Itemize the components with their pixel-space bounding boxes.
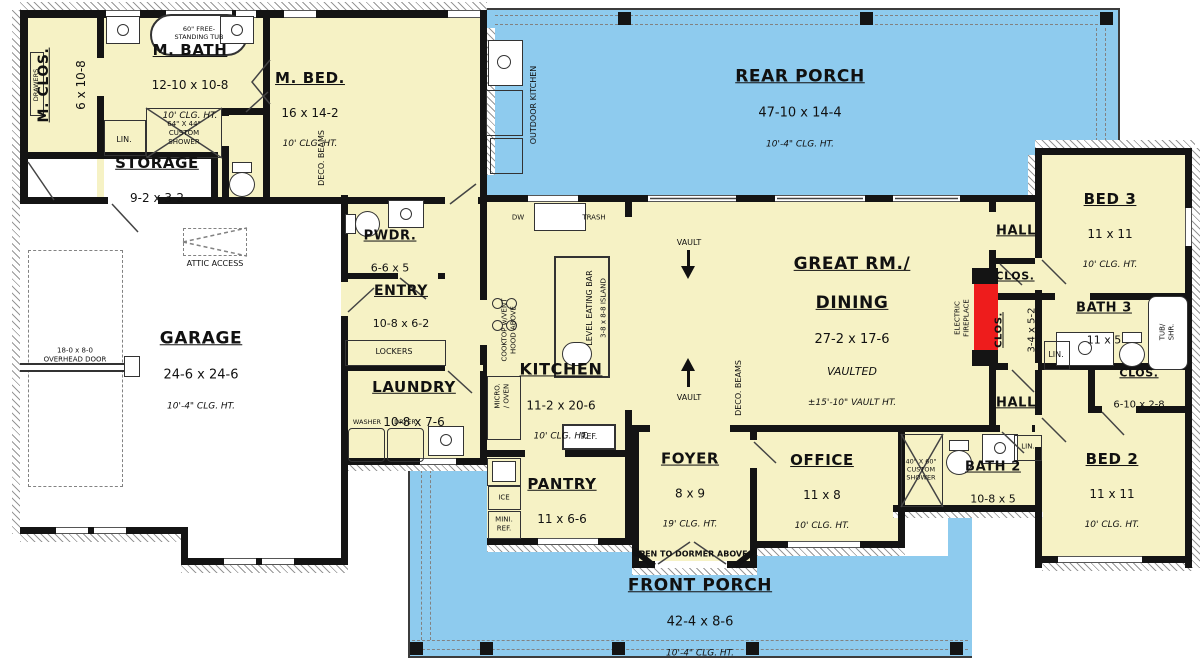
foyer-note: OPEN TO DORMER ABOVE	[632, 550, 747, 560]
drawers-label: DRAWERS	[33, 69, 41, 102]
m-bed-name: M. BED.	[275, 70, 345, 88]
overhead-door-track	[20, 363, 136, 372]
outdoor-kitchen-label: OUTDOOR KITCHEN	[529, 66, 539, 145]
wall	[625, 410, 632, 545]
door-opening	[1035, 258, 1042, 290]
door-opening	[1008, 363, 1038, 370]
office-clg: 10' CLG. HT.	[790, 521, 854, 532]
porch-post	[1100, 12, 1113, 25]
sink-basin	[117, 24, 129, 36]
bed3-clg: 10' CLG. HT.	[1083, 260, 1138, 271]
attic-access-label: ATTIC ACCESS	[187, 259, 244, 269]
pwdr-name: PWDR.	[364, 228, 417, 243]
kitchen-name: KITCHEN	[520, 360, 603, 379]
window	[262, 558, 294, 565]
m-bath-name: M. BATH	[152, 42, 229, 60]
kitchen-dims: 11-2 x 20-6	[520, 398, 603, 412]
entry-dims: 10-8 x 6-2	[373, 318, 429, 331]
bed2-dims: 11 x 11	[1085, 487, 1140, 501]
rear-porch-edge-right	[1118, 8, 1120, 150]
hatch-garage-bottom1	[20, 534, 188, 542]
window	[528, 195, 578, 202]
outdoor-grill	[486, 90, 523, 136]
wall	[263, 10, 270, 204]
vault-arrow-up-head	[681, 358, 695, 371]
wall	[222, 108, 270, 115]
tub-shr-label: TUB/ SHR.	[1158, 316, 1176, 349]
room-label-clos342: CLOS. 3-4 x 5-2	[974, 308, 1059, 353]
wall	[211, 152, 218, 204]
hatch-bed2-bottom	[1042, 563, 1192, 571]
lin-label-bath3: LIN.	[1048, 350, 1063, 360]
storage-dims: 9-2 x 3-2	[115, 191, 199, 205]
foyer-name: FOYER	[632, 450, 747, 468]
great-rm-name2: DINING	[794, 293, 911, 313]
room-label-bed2: BED 2 11 x 11 10' CLG. HT.	[1085, 432, 1140, 550]
front-porch-area-office	[757, 548, 905, 658]
hall-lower-label: HALL	[996, 395, 1036, 410]
dashed-line	[421, 470, 422, 640]
bath2-name: BATH 2	[965, 459, 1021, 474]
ref-label: REF.	[581, 432, 597, 442]
window	[224, 558, 256, 565]
vault-arrow-down-head	[681, 266, 695, 279]
room-label-kitchen: KITCHEN 11-2 x 20-6 10' CLG. HT.	[520, 341, 603, 460]
dw-label: DW	[512, 214, 524, 223]
window	[1058, 556, 1142, 563]
porch-post	[410, 642, 423, 655]
dashed-line	[495, 15, 1113, 16]
porch-post	[950, 642, 963, 655]
front-porch-edge-left	[408, 468, 410, 658]
hatch-bedwing-top	[1035, 140, 1195, 148]
fireplace-surround-top	[972, 268, 998, 284]
floor-plan: REAR PORCH 47-10 x 14-4 10'-4" CLG. HT. …	[0, 0, 1200, 670]
office-name: OFFICE	[790, 452, 854, 470]
garage-clg: 10'-4" CLG. HT.	[160, 401, 243, 412]
great-rm-vaulted: VAULTED	[794, 366, 911, 379]
vault-arrow-up-stem	[687, 371, 690, 387]
window	[56, 527, 88, 534]
room-label-clos610: CLOS. 6-10 x 2-8	[1113, 348, 1164, 429]
vault-label-1: VAULT	[677, 238, 702, 248]
vault-arrow-down-stem	[687, 250, 690, 266]
room-label-bed3: BED 3 11 x 11 10' CLG. HT.	[1083, 172, 1138, 290]
island-label: 3-8 x 8-8 ISLAND	[600, 278, 609, 338]
hatch-bed3-porch-side	[1028, 155, 1035, 198]
fireplace-label: ELECTRIC FIREPLACE	[953, 299, 971, 337]
wall	[625, 195, 632, 217]
room-label-m-clos: M. CLOS. 6 x 10-8	[16, 48, 109, 123]
m-clos-dims: 6 x 10-8	[73, 48, 88, 123]
storage-name: STORAGE	[115, 155, 199, 173]
rear-porch-name: REAR PORCH	[735, 66, 865, 86]
eating-bar-label: LEVEL EATING BAR	[585, 270, 595, 345]
bed2-clg: 10' CLG. HT.	[1085, 520, 1140, 531]
trash-label: TRASH	[582, 214, 605, 223]
m-bed-dims: 16 x 14-2	[275, 106, 345, 120]
hatch-top	[20, 2, 487, 10]
ice-label: ICE	[498, 494, 509, 503]
vault-label-2: VAULT	[677, 393, 702, 403]
room-label-foyer: FOYER 8 x 9 19' CLG. HT. OPEN TO DORMER …	[632, 432, 747, 579]
front-porch-clg: 10'-4" CLG. HT.	[628, 648, 772, 659]
bed3-dims: 11 x 11	[1083, 227, 1138, 241]
entry-name: ENTRY	[373, 283, 429, 300]
window	[420, 458, 456, 465]
dryer-label: DRYER	[394, 419, 416, 427]
room-label-bath2: BATH 2 10-8 x 5	[965, 441, 1021, 526]
sink-basin	[497, 55, 511, 69]
dashed-line	[1096, 28, 1097, 146]
door-opening	[480, 300, 487, 345]
dashed-line	[1105, 28, 1106, 146]
porch-post	[480, 642, 493, 655]
clos610-name: CLOS.	[1113, 367, 1164, 380]
room-label-garage: GARAGE 24-6 x 24-6 10'-4" CLG. HT.	[160, 309, 243, 430]
wall	[996, 293, 1042, 300]
pantry-sink	[492, 461, 516, 482]
window	[1185, 208, 1192, 246]
room-label-m-bed: M. BED. 16 x 14-2 10' CLG. HT.	[275, 51, 345, 169]
hatch-laundry-bottom	[341, 465, 487, 471]
bath3-dims: 11 x 5	[1076, 335, 1132, 348]
mini-ref-label: MINI. REF.	[495, 515, 513, 533]
hatch-pantry-bottom	[487, 545, 632, 552]
front-porch-area-pantry	[487, 545, 632, 658]
window	[284, 10, 316, 18]
window	[448, 10, 480, 18]
office-dims: 11 x 8	[790, 488, 854, 502]
sink-basin	[231, 24, 243, 36]
sliding-door	[775, 195, 865, 202]
bath3-name: BATH 3	[1076, 300, 1132, 315]
great-rm-dims: 27-2 x 17-6	[794, 332, 911, 347]
lin-label-bath2: LIN.	[1021, 443, 1034, 452]
room-label-pantry: PANTRY 11 x 6-6	[527, 457, 596, 545]
foyer-dims: 8 x 9	[632, 487, 747, 501]
m-bed-clg: 10' CLG. HT.	[275, 139, 345, 150]
bath2-dims: 10-8 x 5	[965, 494, 1021, 507]
clos610-dims: 6-10 x 2-8	[1113, 399, 1164, 411]
hatch-garage-bottom2	[181, 565, 348, 573]
door-opening	[341, 282, 348, 316]
wall	[1035, 148, 1192, 155]
cased-opening	[989, 212, 996, 250]
great-rm-name1: GREAT RM./	[794, 254, 911, 274]
dashed-line	[495, 24, 1113, 25]
bath2-shower-label: 40" X 60" CUSTOM SHOWER	[905, 458, 936, 481]
clos342-dims: 3-4 x 5-2	[1026, 308, 1039, 353]
room-label-office: OFFICE 11 x 8 10' CLG. HT.	[790, 433, 854, 551]
bed2-name: BED 2	[1085, 451, 1140, 469]
room-label-entry: ENTRY 10-8 x 6-2	[373, 264, 429, 350]
cooktop-label: COOKTOP w/VENT HOOD ABOVE	[500, 299, 518, 362]
great-rm-clg: ±15'-10" VAULT HT.	[794, 398, 911, 409]
garage-name: GARAGE	[160, 328, 243, 348]
bed3-name: BED 3	[1083, 191, 1138, 209]
overhead-door-label: 18-0 x 8-0 OVERHEAD DOOR	[44, 346, 107, 364]
pantry-name: PANTRY	[527, 476, 596, 494]
porch-post	[860, 12, 873, 25]
garage-dims: 24-6 x 24-6	[160, 367, 243, 382]
washer-label: WASHER	[353, 419, 381, 427]
micro-oven-label: MICRO. / OVEN	[493, 383, 511, 408]
sliding-door	[893, 195, 960, 202]
deco-beams-label-mbed: DECO. BEAMS	[317, 130, 327, 186]
window	[94, 527, 126, 534]
lockers-label: LOCKERS	[376, 347, 413, 357]
porch-post	[618, 12, 631, 25]
toilet	[229, 162, 255, 198]
door-opening	[445, 197, 478, 204]
kitchen-sink	[534, 203, 586, 231]
front-porch-area-left	[408, 468, 488, 658]
laundry-name: LAUNDRY	[372, 379, 456, 397]
rear-porch-clg: 10'-4" CLG. HT.	[735, 139, 865, 150]
clos342-name: CLOS.	[994, 308, 1007, 353]
clos-hall-label: CLOS.	[995, 271, 1034, 284]
door-opening	[1000, 425, 1032, 432]
rear-porch-dims: 47-10 x 14-4	[735, 105, 865, 120]
dashed-line	[430, 470, 431, 640]
attic-access-box	[183, 228, 247, 256]
hatch-bedwing-right	[1192, 148, 1200, 568]
room-label-laundry: LAUNDRY 10-8 x 7-6	[372, 360, 456, 448]
room-label-rear-porch: REAR PORCH 47-10 x 14-4 10'-4" CLG. HT.	[735, 47, 865, 168]
porch-post	[612, 642, 625, 655]
outdoor-fridge	[490, 138, 523, 174]
wall	[341, 195, 348, 565]
tub-label: 60" FREE- STANDING TUB	[175, 26, 224, 42]
foyer-clg: 19' CLG. HT.	[632, 520, 747, 531]
room-label-storage: STORAGE 9-2 x 3-2	[115, 136, 199, 224]
pantry-dims: 11 x 6-6	[527, 512, 596, 526]
hall-upper-label: HALL	[996, 223, 1036, 238]
rear-porch-edge-top	[487, 8, 1120, 10]
sliding-door	[648, 195, 736, 202]
door-opening	[750, 440, 757, 468]
wall	[1035, 155, 1042, 568]
m-bath-dims: 12-10 x 10-8	[152, 78, 229, 92]
wall	[996, 258, 1035, 264]
overhead-door-handle	[124, 356, 140, 377]
front-porch-dims: 42-4 x 8-6	[628, 614, 772, 629]
deco-beams-label-great: DECO. BEAMS	[734, 360, 744, 416]
room-label-great-rm: GREAT RM./ DINING 27-2 x 17-6 VAULTED ±1…	[794, 235, 911, 427]
m-shower-label: 64" X 44" CUSTOM SHOWER	[167, 120, 201, 146]
